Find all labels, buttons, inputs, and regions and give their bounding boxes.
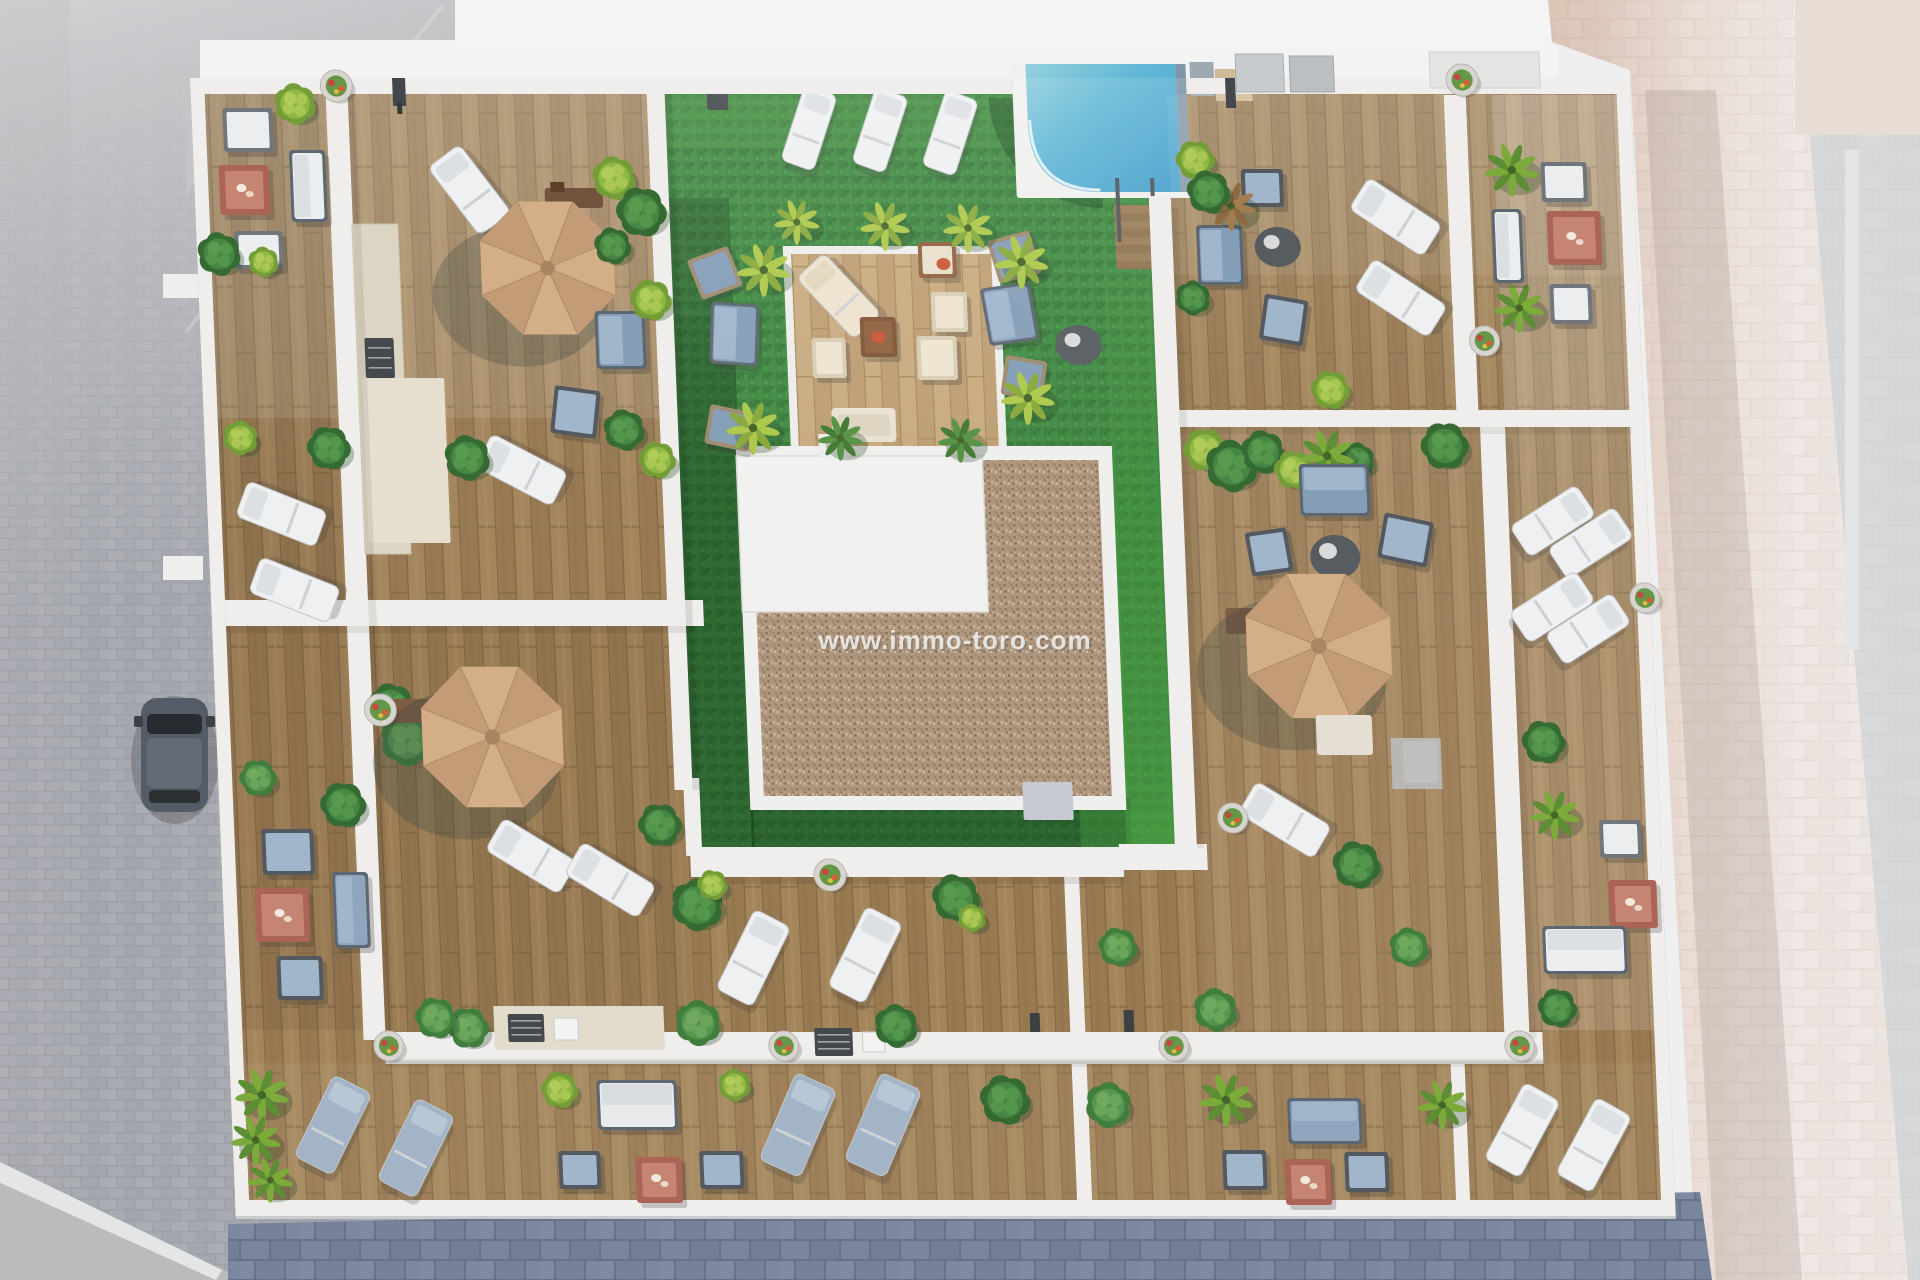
svg-text:www.immo-toro.com: www.immo-toro.com [817,625,1091,655]
